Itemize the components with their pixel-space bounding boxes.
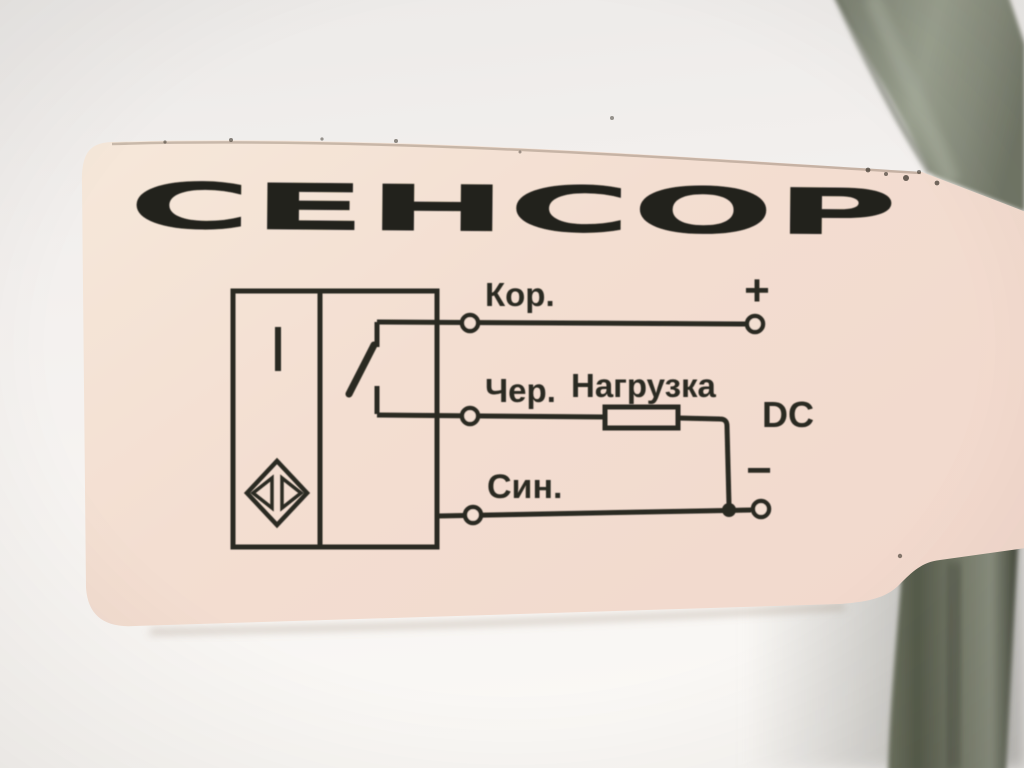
vignette-overlay (0, 0, 1024, 768)
photo-stage: СЕНСОР Кор. + Чер. (0, 0, 1024, 768)
sensor-label-photo: СЕНСОР Кор. + Чер. (0, 0, 1024, 768)
